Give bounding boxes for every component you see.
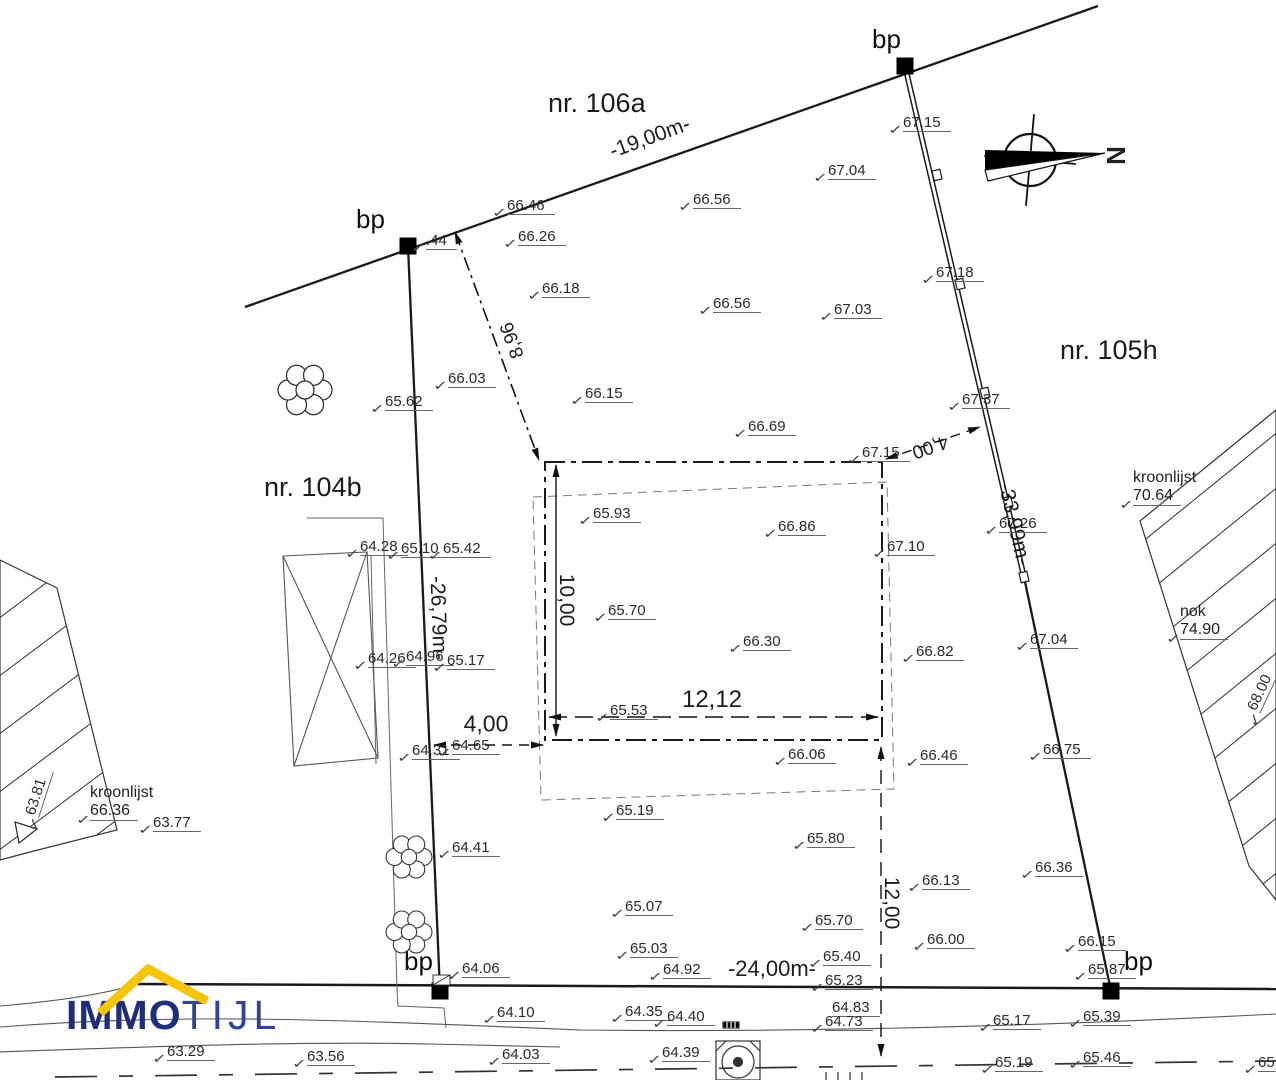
spot-check-icon: ✓ [978, 1020, 993, 1036]
spot-elevation: ✓63.81 [22, 767, 54, 818]
spot-check-icon: ✓ [907, 880, 922, 896]
spot-elevation: ✓.44 [426, 232, 457, 250]
spot-check-icon: ✓ [610, 906, 625, 922]
spot-elevation: ✓66.82 [916, 643, 964, 661]
spot-elevation: ✓67.15 [862, 444, 910, 462]
spot-elevation: ✓66.56 [713, 295, 761, 313]
spot-check-icon: ✓ [428, 548, 443, 564]
spot-elevation: ✓67.04 [828, 162, 876, 180]
spot-check-icon: ✓ [492, 205, 507, 221]
spot-check-icon: ✓ [819, 309, 834, 325]
spot-check-icon: ✓ [1063, 941, 1078, 957]
spot-check-icon: ✓ [648, 969, 663, 985]
spot-check-icon: ✓ [698, 303, 713, 319]
spot-check-icon: ✓ [397, 750, 412, 766]
bp-point-label: bp [404, 946, 433, 977]
spot-check-icon: ✓ [980, 1062, 995, 1078]
spot-elevation: ✓67.04 [1030, 631, 1078, 649]
spot-elevation: ✓67.15 [903, 114, 951, 132]
spot-elevation: ✓65.87 [1088, 961, 1136, 979]
spot-check-icon: ✓ [901, 651, 916, 667]
spot-elevation: ✓67.37 [962, 391, 1010, 409]
bp-point-label: bp [356, 204, 385, 235]
spot-elevation: ✓64.06 [462, 960, 510, 978]
spot-check-icon: ✓ [1245, 709, 1266, 730]
spot-check-icon: ✓ [437, 847, 452, 863]
dimension-label: 4,00 [464, 711, 509, 738]
dimension-label: 4,00 [909, 430, 951, 463]
spot-elevation: ✓63.56 [307, 1048, 355, 1066]
spot-check-icon: ✓ [432, 660, 447, 676]
spot-elevation: ✓65.8 [1258, 1054, 1276, 1072]
spot-check-icon: ✓ [527, 288, 542, 304]
spot-elevation: ✓66.30 [743, 633, 791, 651]
labels-layer: nr. 106anr. 105hnr. 104bbpbpbpbp-19,00m-… [0, 0, 1276, 1080]
spot-elevation: ✓64.40 [667, 1008, 715, 1026]
spot-check-icon: ✓ [1073, 969, 1088, 985]
dimension-label: -19,00m- [606, 112, 693, 163]
spot-check-icon: ✓ [808, 956, 823, 972]
spot-check-icon: ✓ [1028, 749, 1043, 765]
spot-check-icon: ✓ [773, 754, 788, 770]
spot-elevation: ✓66.13 [922, 872, 970, 890]
spot-elevation: ✓67.10 [887, 538, 935, 556]
spot-check-icon: ✓ [905, 755, 920, 771]
spot-elevation: ✓65.93 [593, 505, 641, 523]
spot-check-icon: ✓ [487, 1054, 502, 1070]
survey-plan: nr. 106anr. 105hnr. 104bbpbpbpbp-19,00m-… [0, 0, 1276, 1080]
spot-check-icon: ✓ [1015, 639, 1030, 655]
spot-elevation: ✓63.29 [167, 1043, 215, 1061]
spot-elevation: ✓65.53 [610, 702, 658, 720]
spot-elevation: ✓64.65 [452, 737, 500, 755]
spot-check-icon: ✓ [437, 745, 452, 761]
spot-check-icon: ✓ [578, 513, 593, 529]
logo-tijl-text: TIJL [182, 992, 282, 1038]
spot-check-icon: ✓ [872, 546, 887, 562]
spot-elevation: ✓65.23 [825, 972, 873, 990]
spot-check-icon: ✓ [76, 811, 91, 829]
spot-elevation: ✓65.80 [807, 830, 855, 848]
spot-check-icon: ✓ [984, 523, 999, 539]
spot-elevation: ✓65.46 [1083, 1049, 1131, 1067]
spot-check-icon: ✓ [610, 1011, 625, 1027]
spot-check-icon: ✓ [800, 920, 815, 936]
spot-check-icon: ✓ [728, 641, 743, 657]
parcel-number-label: nr. 105h [1060, 335, 1158, 366]
parcel-number-label: nr. 106a [548, 88, 646, 119]
spot-check-icon: ✓ [763, 526, 778, 542]
spot-check-icon: ✓ [888, 122, 903, 138]
spot-elevation: ✓66.36 [1035, 859, 1083, 877]
annotation-block: nok74.90✓ [1180, 603, 1228, 640]
spot-check-icon: ✓ [353, 658, 368, 674]
spot-check-icon: ✓ [25, 814, 45, 833]
spot-check-icon: ✓ [921, 272, 936, 288]
spot-elevation: ✓66.15 [585, 385, 633, 403]
spot-check-icon: ✓ [1243, 1062, 1258, 1078]
spot-elevation: ✓65.19 [995, 1054, 1043, 1072]
spot-check-icon: ✓ [345, 546, 360, 562]
spot-elevation: ✓65.70 [608, 602, 656, 620]
spot-check-icon: ✓ [947, 399, 962, 415]
spot-elevation: ✓66.75 [1043, 741, 1091, 759]
spot-check-icon: ✓ [593, 610, 608, 626]
spot-check-icon: ✓ [912, 939, 927, 955]
spot-check-icon: ✓ [652, 1016, 667, 1032]
spot-elevation: ✓65.70 [815, 912, 863, 930]
dimension-label: 12,12 [682, 686, 742, 714]
immo-tijl-logo: IMMOTIJL [66, 992, 281, 1039]
dimension-label: 12,00 [879, 877, 903, 930]
spot-elevation: ✓65.07 [625, 898, 673, 916]
spot-elevation: ✓65.40 [823, 948, 871, 966]
spot-elevation: ✓66.56 [693, 191, 741, 209]
spot-check-icon: ✓ [138, 822, 153, 838]
spot-check-icon: ✓ [386, 548, 401, 564]
dimension-label: 8,96 [496, 319, 529, 361]
spot-check-icon: ✓ [570, 393, 585, 409]
annotation-block: kroonlijst66.36✓ [90, 784, 153, 821]
spot-check-icon: ✓ [601, 810, 616, 826]
parcel-number-label: nr. 104b [264, 472, 362, 503]
spot-elevation: ✓64.92 [663, 961, 711, 979]
spot-elevation: ✓67.18 [936, 264, 984, 282]
spot-elevation: ✓66.03 [448, 370, 496, 388]
spot-elevation: ✓64.10 [497, 1004, 545, 1022]
spot-check-icon: ✓ [391, 656, 406, 672]
spot-check-icon: ✓ [370, 401, 385, 417]
spot-elevation: ✓66.69 [748, 418, 796, 436]
spot-elevation: ✓66.15 [1078, 933, 1126, 951]
spot-check-icon: ✓ [503, 236, 518, 252]
spot-elevation: ✓68.00 [1244, 663, 1276, 714]
spot-check-icon: ✓ [733, 426, 748, 442]
spot-check-icon: ✓ [810, 980, 825, 996]
spot-check-icon: ✓ [292, 1056, 307, 1072]
spot-elevation: ✓66.46 [507, 197, 555, 215]
spot-check-icon: ✓ [482, 1012, 497, 1028]
spot-elevation: ✓67.26 [999, 515, 1047, 533]
spot-elevation: ✓65.17 [447, 652, 495, 670]
spot-elevation: ✓66.26 [518, 228, 566, 246]
spot-check-icon: ✓ [1020, 867, 1035, 883]
spot-elevation: ✓63.77 [153, 814, 201, 832]
spot-check-icon: ✓ [152, 1051, 167, 1067]
spot-elevation: ✓65.39 [1083, 1008, 1131, 1026]
spot-elevation: ✓66.18 [542, 280, 590, 298]
spot-check-icon: ✓ [810, 1021, 825, 1037]
spot-check-icon: ✓ [1068, 1016, 1083, 1032]
spot-elevation: ✓67.03 [834, 301, 882, 319]
spot-check-icon: ✓ [411, 240, 426, 256]
bp-point-label: bp [872, 24, 901, 55]
spot-check-icon: ✓ [813, 170, 828, 186]
spot-check-icon: ✓ [1119, 496, 1134, 514]
spot-check-icon: ✓ [433, 378, 448, 394]
spot-check-icon: ✓ [647, 1052, 662, 1068]
spot-check-icon: ✓ [595, 710, 610, 726]
spot-check-icon: ✓ [615, 948, 630, 964]
spot-check-icon: ✓ [678, 199, 693, 215]
spot-elevation: ✓66.00 [927, 931, 975, 949]
spot-elevation: ✓65.42 [443, 540, 491, 558]
spot-elevation: ✓64.73 [825, 1013, 873, 1031]
spot-elevation: ✓64.03 [502, 1046, 550, 1064]
spot-elevation: ✓64.41 [452, 839, 500, 857]
spot-elevation: ✓64.39 [662, 1044, 710, 1062]
spot-elevation: ✓65.19 [616, 802, 664, 820]
spot-check-icon: ✓ [792, 838, 807, 854]
spot-check-icon: ✓ [847, 452, 862, 468]
spot-check-icon: ✓ [1166, 630, 1181, 648]
spot-elevation: ✓66.46 [920, 747, 968, 765]
dimension-label: 10,00 [554, 574, 578, 627]
spot-elevation: ✓65.62 [385, 393, 433, 411]
spot-check-icon: ✓ [1068, 1057, 1083, 1073]
annotation-block: kroonlijst70.64✓ [1133, 469, 1196, 506]
spot-check-icon: ✓ [447, 968, 462, 984]
spot-elevation: ✓66.86 [778, 518, 826, 536]
spot-elevation: ✓65.03 [630, 940, 678, 958]
logo-immo-text: IMMO [66, 992, 182, 1038]
spot-elevation: ✓65.17 [993, 1012, 1041, 1030]
dimension-label: -24,00m- [728, 956, 816, 982]
spot-elevation: ✓66.06 [788, 746, 836, 764]
